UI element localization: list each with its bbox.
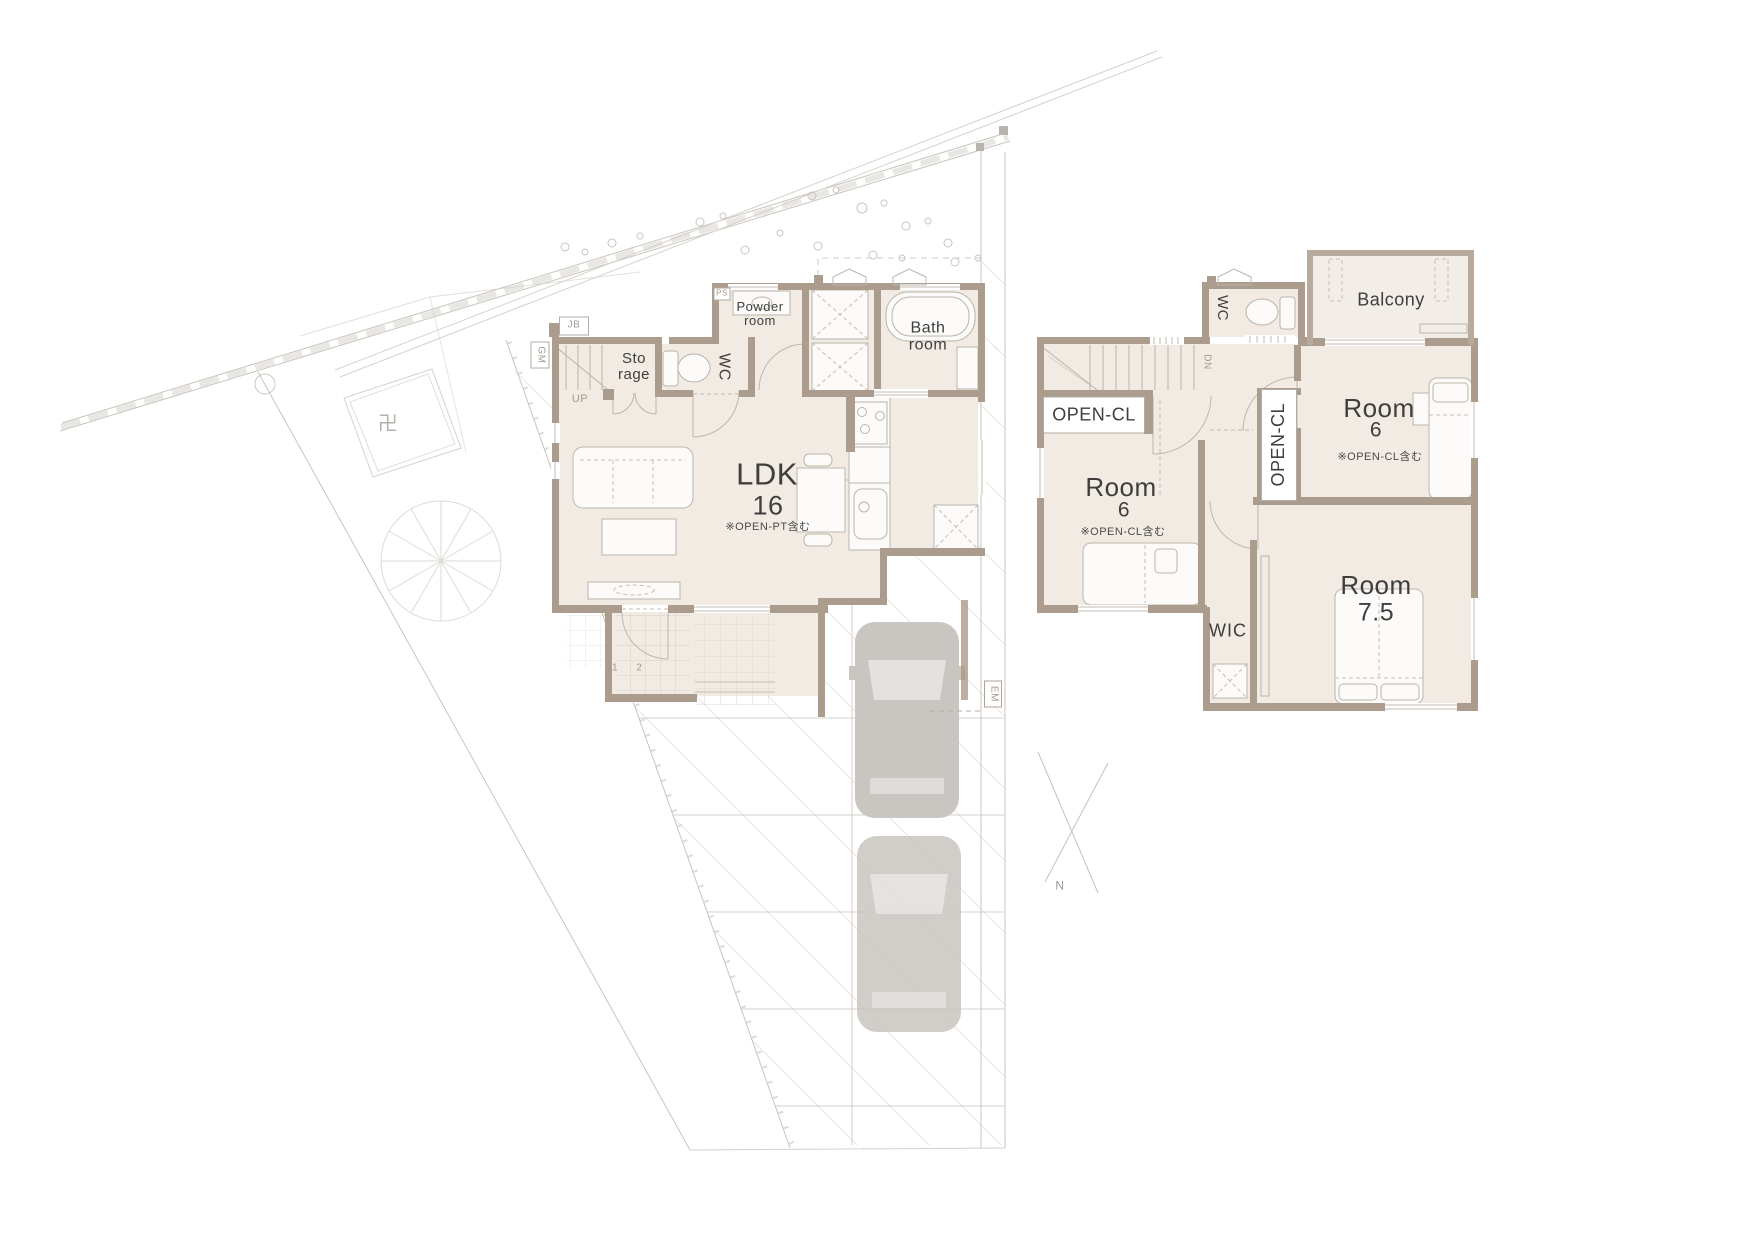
floorplan-drawing <box>0 0 1754 1240</box>
room6-west-note: ※OPEN-CL含む <box>1080 527 1165 539</box>
room-label-ldk: LDK <box>736 457 798 490</box>
gm-marker: GM <box>531 342 550 369</box>
compass-icon <box>1038 752 1108 893</box>
ldk-note: ※OPEN-PT含む <box>725 522 810 534</box>
bath-line2: room <box>909 337 947 354</box>
f1-entrance-tiles <box>566 613 775 705</box>
room-label-wc-2f: WC <box>1214 295 1230 321</box>
room6-east-note: ※OPEN-CL含む <box>1337 452 1422 464</box>
room75-size: 7.5 <box>1358 600 1394 627</box>
storage-line2: rage <box>618 367 650 383</box>
room6-west-name: Room <box>1085 473 1156 501</box>
car-icon <box>849 622 965 818</box>
open-cl-west-label: OPEN-CL <box>1043 397 1145 434</box>
stairs-up-label: UP <box>572 394 588 406</box>
open-cl-east-label: OPEN-CL <box>1261 389 1297 501</box>
storage-line1: Sto <box>618 351 650 367</box>
room-label-wc-1f: WC <box>715 353 732 381</box>
balcony-label: Balcony <box>1357 290 1425 309</box>
room-label-storage: Sto rage <box>618 351 650 383</box>
powder-line1: Powder <box>736 300 783 314</box>
temple-symbol: 卍 <box>378 414 399 436</box>
room-label-powder: Powder room <box>736 300 783 328</box>
gm-text: GM <box>535 346 546 363</box>
room75-name: Room <box>1340 571 1411 599</box>
stairs-dn-label: DN <box>1201 354 1212 369</box>
powder-line2: room <box>736 314 783 328</box>
room-label-bath: Bath room <box>909 320 947 355</box>
ps-marker: PS <box>714 288 731 301</box>
tree-symbol <box>381 501 501 621</box>
floorplan-image: Powder room WC Sto rage UP Bath room LDK… <box>0 0 1754 1240</box>
em-text: EM <box>988 686 999 702</box>
ldk-size: 16 <box>752 491 783 520</box>
room6-west-size: 6 <box>1118 500 1130 523</box>
open-cl-east-text: OPEN-CL <box>1269 403 1288 487</box>
car-icon-2 <box>857 836 961 1032</box>
jb-marker: JB <box>559 317 589 336</box>
wic-label: WIC <box>1209 621 1247 640</box>
bath-line1: Bath <box>909 320 947 337</box>
em-marker: EM <box>984 681 1002 708</box>
genkan-step-numbers: 1 2 <box>612 664 650 675</box>
f1-roof-vents <box>833 269 926 285</box>
room6-east-size: 6 <box>1370 420 1382 443</box>
compass-north-label: N <box>1055 880 1064 893</box>
